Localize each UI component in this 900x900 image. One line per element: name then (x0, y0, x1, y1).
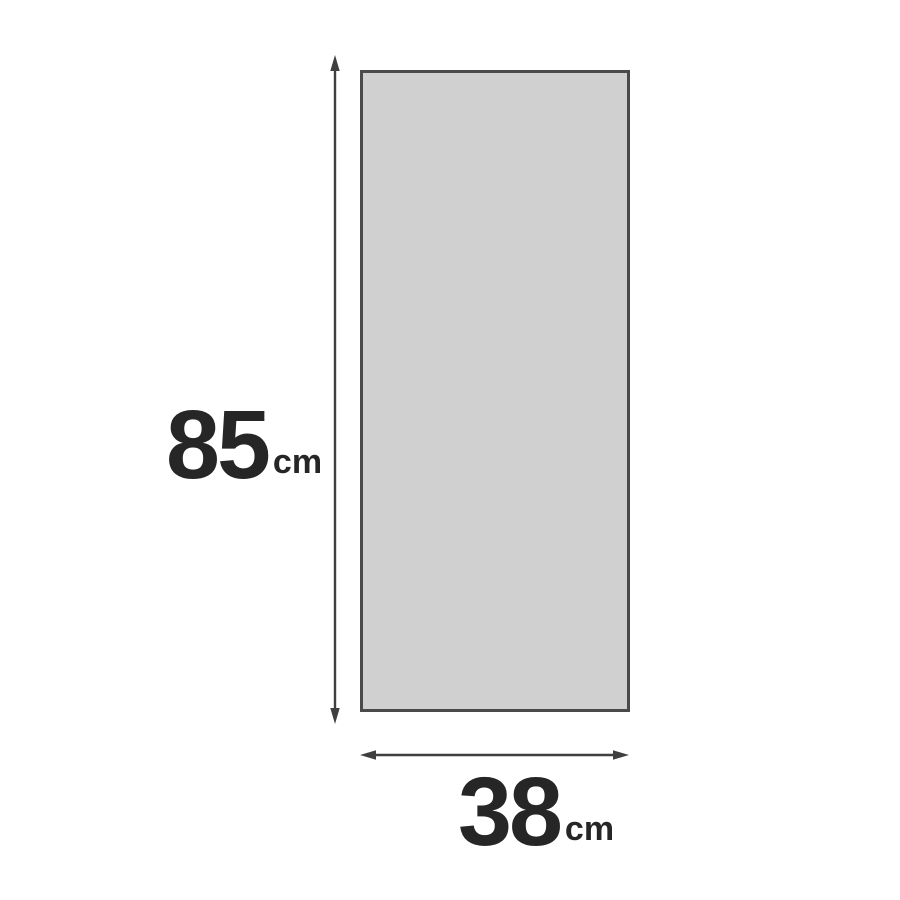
arrow-down-icon (330, 708, 339, 724)
height-dimension-arrow (330, 55, 339, 724)
width-value: 38 (458, 763, 560, 860)
height-unit: cm (273, 445, 322, 479)
arrow-left-icon (360, 750, 376, 759)
width-dimension-label: 38 cm (458, 763, 614, 860)
dimension-diagram: 85 cm 38 cm (0, 0, 900, 900)
measured-rectangle (360, 70, 630, 712)
height-value: 85 (166, 396, 268, 493)
height-dimension-label: 85 cm (166, 396, 322, 493)
width-unit: cm (565, 812, 614, 846)
arrow-right-icon (613, 750, 629, 759)
arrow-up-icon (330, 55, 339, 71)
